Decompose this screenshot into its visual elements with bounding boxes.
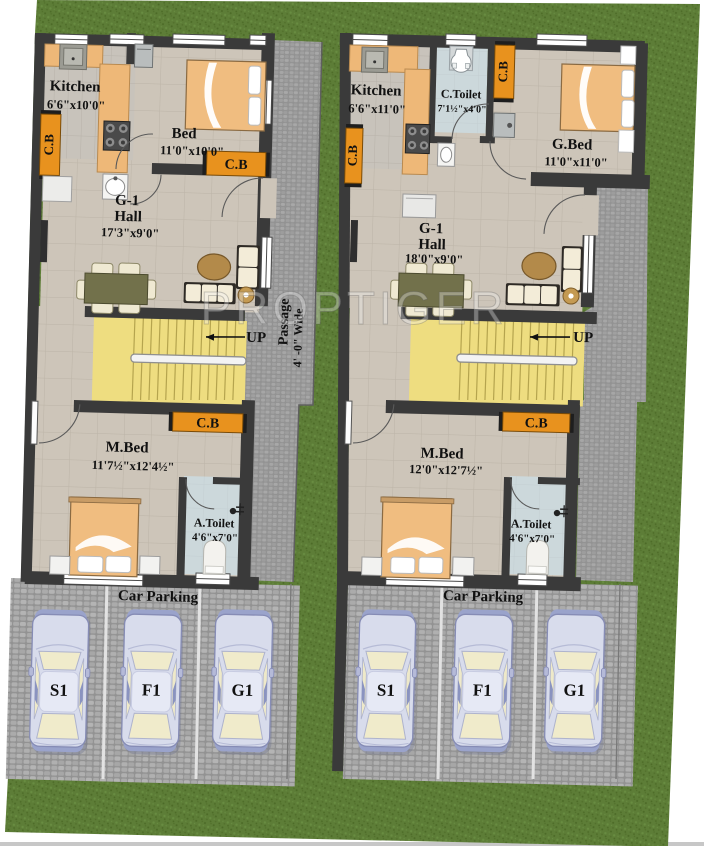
svg-text:Car Parking: Car Parking bbox=[118, 588, 199, 606]
svg-text:PROPTIGER: PROPTIGER bbox=[201, 282, 508, 334]
svg-text:S1: S1 bbox=[50, 681, 68, 700]
svg-text:F1: F1 bbox=[473, 681, 492, 700]
svg-text:UP: UP bbox=[573, 330, 593, 347]
svg-text:F1: F1 bbox=[142, 680, 161, 699]
svg-text:Kitchen: Kitchen bbox=[49, 78, 101, 95]
svg-text:S1: S1 bbox=[377, 680, 395, 699]
svg-text:C.B: C.B bbox=[495, 61, 511, 83]
svg-text:6'6"x10'0": 6'6"x10'0" bbox=[47, 97, 106, 113]
svg-text:M.Bed: M.Bed bbox=[420, 445, 464, 462]
svg-text:4'6"x7'0": 4'6"x7'0" bbox=[192, 531, 238, 544]
svg-text:18'0"x9'0": 18'0"x9'0" bbox=[405, 251, 464, 267]
svg-text:4'6"x7'0": 4'6"x7'0" bbox=[509, 532, 555, 545]
svg-text:C.Toilet: C.Toilet bbox=[441, 86, 482, 101]
svg-text:G1: G1 bbox=[563, 680, 585, 700]
svg-text:12'0"x12'7½": 12'0"x12'7½" bbox=[409, 462, 483, 478]
svg-text:A.Toilet: A.Toilet bbox=[194, 515, 235, 530]
svg-text:M.Bed: M.Bed bbox=[105, 439, 149, 456]
svg-text:G.Bed: G.Bed bbox=[552, 136, 593, 153]
svg-text:C.B: C.B bbox=[345, 144, 361, 166]
svg-text:Car Parking: Car Parking bbox=[443, 588, 524, 606]
svg-text:11'7½"x12'4½": 11'7½"x12'4½" bbox=[92, 458, 175, 474]
svg-text:G-1: G-1 bbox=[115, 193, 140, 210]
svg-text:C.B: C.B bbox=[525, 416, 548, 432]
svg-text:Kitchen: Kitchen bbox=[350, 82, 402, 99]
svg-text:17'3"x9'0": 17'3"x9'0" bbox=[101, 225, 160, 241]
svg-text:6'6"x11'0": 6'6"x11'0" bbox=[348, 101, 406, 117]
svg-text:A.Toilet: A.Toilet bbox=[511, 516, 552, 531]
svg-text:C.B: C.B bbox=[41, 134, 57, 156]
svg-text:11'0"x10'0": 11'0"x10'0" bbox=[160, 143, 224, 159]
svg-text:11'0"x11'0": 11'0"x11'0" bbox=[544, 154, 608, 170]
svg-text:C.B: C.B bbox=[224, 158, 247, 174]
svg-text:Hall: Hall bbox=[114, 209, 142, 226]
svg-text:G-1: G-1 bbox=[419, 221, 444, 238]
svg-text:G1: G1 bbox=[231, 680, 253, 700]
svg-text:7'1½"x4'0": 7'1½"x4'0" bbox=[437, 103, 486, 115]
svg-text:Bed: Bed bbox=[171, 126, 197, 143]
svg-text:C.B: C.B bbox=[196, 416, 219, 432]
